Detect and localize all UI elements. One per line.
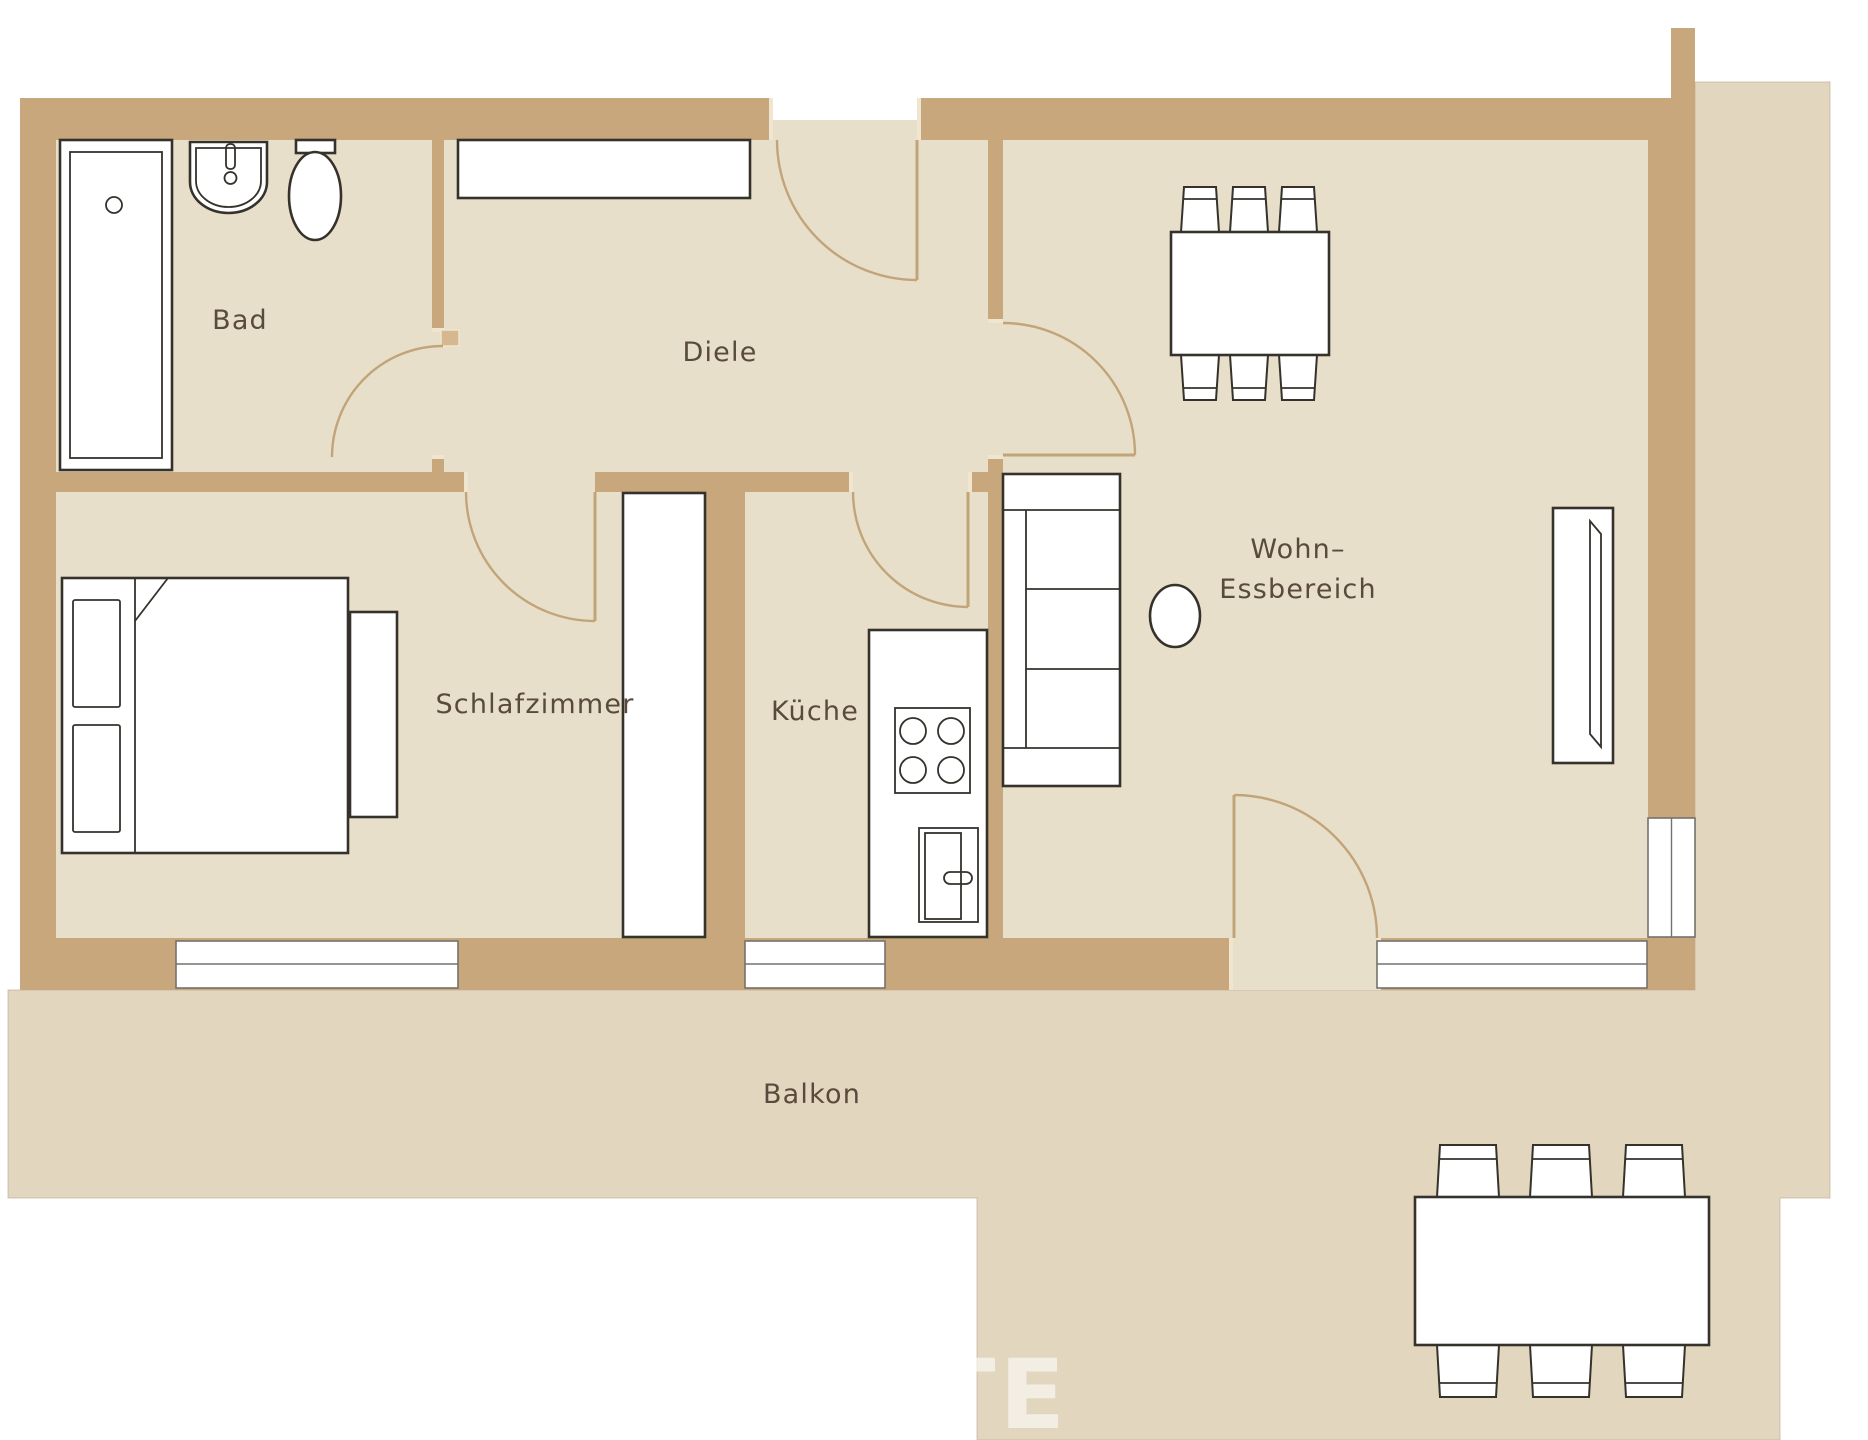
- window-wohnbereich-sued: [1377, 941, 1647, 988]
- wall-schlaf-kueche: [703, 492, 745, 938]
- kitchen-counter-icon: [869, 630, 987, 937]
- window-kueche: [745, 941, 885, 988]
- label-bad: Bad: [212, 305, 268, 336]
- kueche-door-gap: [853, 472, 968, 492]
- label-diele: Diele: [682, 337, 757, 368]
- bedroom-wardrobe-icon: [623, 493, 705, 937]
- window-schlafzimmer: [176, 941, 458, 988]
- floor-plan-svg: Bad Diele Schlafzimmer Küche Wohn– Essbe…: [0, 0, 1868, 1440]
- cap-schlaf-left: [464, 472, 468, 492]
- cap-wohn-top: [988, 319, 1003, 323]
- wall-diele-wohn: [988, 140, 1003, 938]
- tv-sideboard-icon: [1553, 508, 1613, 763]
- window-wohnbereich-ost: [1648, 818, 1695, 937]
- label-schlafzimmer: Schlafzimmer: [435, 689, 634, 720]
- cap-wohn-bottom: [988, 455, 1003, 459]
- bed-bench-icon: [350, 612, 397, 817]
- cap-balkon-left: [1229, 938, 1233, 990]
- wohn-door-gap: [988, 323, 1003, 455]
- label-wohn-line1: Wohn–: [1250, 534, 1345, 565]
- cap-entrance-left: [769, 98, 773, 140]
- sink-icon: [190, 142, 267, 213]
- wall-bad-diele: [432, 140, 444, 332]
- wall-left: [20, 98, 56, 990]
- cap-bad-jamb: [432, 455, 444, 459]
- entrance-threshold: [773, 120, 917, 140]
- dining-table-icon: [1171, 187, 1329, 400]
- balcony-table-icon: [1415, 1145, 1709, 1397]
- hall-wardrobe-icon: [458, 140, 750, 198]
- side-table-icon: [1150, 585, 1200, 647]
- label-kueche: Küche: [771, 696, 859, 727]
- cap-entrance-right: [917, 98, 921, 140]
- cap-kueche-left: [849, 472, 853, 492]
- schlafzimmer-door-gap: [468, 472, 595, 492]
- entrance-gap: [773, 98, 917, 120]
- bathtub-icon: [60, 140, 172, 470]
- cap-kueche-right: [968, 472, 972, 492]
- wall-top-stub: [1671, 28, 1695, 100]
- watermark-text: TE: [930, 1339, 1069, 1440]
- balkon-door-gap: [1233, 938, 1377, 990]
- floor-plan-page: Bad Diele Schlafzimmer Küche Wohn– Essbe…: [0, 0, 1868, 1440]
- bed-icon: [62, 578, 348, 853]
- label-balkon: Balkon: [763, 1079, 861, 1110]
- label-wohn-line2: Essbereich: [1219, 574, 1377, 605]
- sofa-icon: [1003, 474, 1120, 786]
